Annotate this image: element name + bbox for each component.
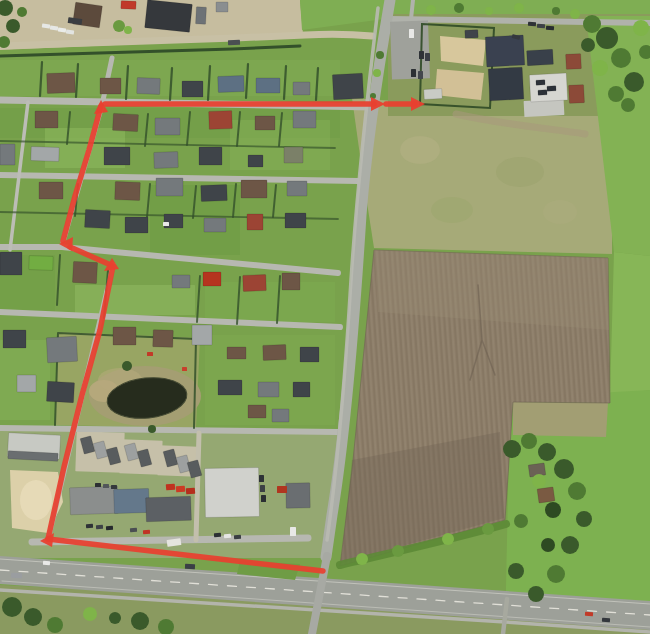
house (284, 147, 303, 163)
tree (592, 60, 608, 76)
vehicle (602, 618, 610, 623)
house (287, 181, 307, 196)
tree (545, 502, 561, 518)
house (247, 214, 263, 230)
solar-panel (547, 86, 556, 91)
red-truck (166, 484, 175, 491)
tree (514, 514, 528, 528)
tree (109, 612, 121, 624)
vehicle (528, 22, 536, 27)
tree (17, 7, 27, 17)
tree (576, 511, 592, 527)
tree (508, 563, 524, 579)
house (39, 182, 63, 199)
tree (485, 7, 493, 15)
vehicle (111, 485, 117, 489)
tree (2, 597, 22, 617)
house (300, 347, 319, 362)
vehicle (95, 483, 101, 487)
house (155, 118, 180, 135)
tree (482, 523, 494, 535)
vehicle (147, 352, 153, 356)
tree (521, 433, 537, 449)
school-red-annex (566, 54, 582, 70)
vehicle (43, 561, 50, 565)
tree (376, 51, 384, 59)
tree (83, 607, 97, 621)
house (17, 375, 36, 392)
school-road-branch (411, 0, 413, 19)
aerial-map-view[interactable] (0, 0, 650, 634)
tree (442, 533, 454, 545)
farm-building (145, 0, 193, 32)
school-sand-yard (435, 69, 484, 100)
vehicle (418, 71, 423, 79)
tree (514, 3, 524, 13)
vehicle (214, 533, 221, 537)
aerial-imagery (0, 0, 650, 634)
truck (228, 40, 240, 45)
vehicle (411, 69, 416, 77)
tree (596, 27, 618, 49)
tree (454, 3, 464, 13)
school-building (527, 49, 554, 65)
tree (356, 553, 368, 565)
tree (568, 482, 586, 500)
house (332, 73, 363, 100)
tree (24, 608, 42, 626)
school-shed (424, 89, 442, 100)
vehicle (234, 535, 241, 539)
tree (538, 443, 556, 461)
vehicle (546, 26, 554, 31)
white-van (290, 527, 296, 536)
lawn-patches-shape (400, 136, 440, 164)
red-truck (186, 488, 195, 495)
school-sand-yard (440, 36, 486, 66)
house (113, 327, 136, 345)
tree (532, 474, 546, 488)
house (85, 209, 111, 228)
vehicle (425, 53, 430, 61)
house (248, 405, 266, 418)
house (100, 78, 121, 94)
school-paved-yard (524, 99, 565, 117)
vehicle (409, 29, 414, 38)
solar-panel (536, 80, 545, 85)
tree (6, 19, 20, 33)
vehicle (96, 525, 103, 529)
farm-building (121, 1, 136, 10)
vehicle (86, 524, 93, 528)
vehicle (261, 495, 266, 502)
house (243, 275, 267, 292)
farmstead-shed (537, 487, 555, 503)
tree (503, 440, 521, 458)
house (113, 113, 139, 131)
school-red-annex (569, 85, 585, 104)
tree (373, 69, 381, 77)
house (258, 382, 279, 397)
house (272, 409, 289, 422)
house (115, 182, 141, 201)
house (218, 76, 245, 93)
red-container (277, 486, 287, 493)
house (201, 185, 228, 202)
vehicle (185, 564, 195, 570)
house (248, 155, 263, 167)
industrial-white-building (205, 468, 260, 518)
vehicle (585, 612, 593, 617)
tree (392, 545, 404, 557)
vehicle (259, 475, 264, 482)
house (0, 144, 15, 165)
house (209, 111, 233, 130)
industrial-building (286, 483, 310, 508)
tree (148, 425, 156, 433)
green-roof-house (29, 256, 53, 271)
house (104, 147, 130, 165)
tree (554, 459, 574, 479)
vehicle (103, 484, 109, 488)
tree (570, 9, 580, 19)
house (0, 252, 22, 275)
house (285, 213, 306, 228)
house (263, 345, 287, 361)
house (293, 82, 310, 95)
farm-building (196, 7, 207, 25)
lawn-patches-shape (543, 200, 577, 224)
scrub-notch (513, 402, 608, 437)
house (156, 178, 183, 196)
lawn-patches-shape (431, 197, 473, 223)
tree (426, 5, 436, 15)
vehicle (260, 485, 265, 492)
tree (608, 86, 624, 102)
school-road (390, 19, 650, 23)
house (31, 147, 59, 162)
vehicle (106, 526, 113, 530)
house (72, 261, 97, 283)
red-roof-house (203, 272, 221, 286)
house (125, 217, 148, 233)
house (282, 273, 300, 290)
sand-pit-inner (20, 480, 52, 520)
vehicle (224, 534, 231, 538)
house (154, 152, 179, 169)
farm-building (216, 2, 228, 12)
house (172, 275, 190, 288)
tree (113, 20, 125, 32)
street-5 (0, 428, 338, 432)
house (241, 180, 267, 198)
house (46, 336, 77, 363)
house (153, 330, 174, 348)
school-building (488, 67, 524, 101)
tree (528, 586, 544, 602)
vehicle (143, 530, 150, 534)
industrial-showroom (114, 488, 150, 513)
meadow-mid-right (610, 252, 650, 396)
tree (624, 72, 644, 92)
tree (621, 98, 635, 112)
lawn-patches-shape (205, 282, 335, 322)
house (293, 382, 310, 397)
house (255, 116, 275, 130)
lawn-patches-shape (75, 285, 195, 315)
tree (131, 612, 149, 630)
vehicle (130, 528, 137, 532)
vehicle (419, 51, 424, 59)
tree (552, 7, 560, 15)
house (256, 78, 280, 93)
house (218, 380, 242, 395)
tree (122, 361, 132, 371)
tree (124, 26, 132, 34)
house (137, 78, 161, 95)
vehicle (182, 367, 187, 371)
tree (541, 538, 555, 552)
house (204, 218, 226, 232)
vehicle (11, 573, 22, 579)
industrial-drive (196, 433, 199, 540)
house (293, 111, 316, 128)
vehicle (163, 222, 169, 226)
house (182, 81, 203, 97)
house (192, 325, 212, 345)
house (227, 347, 246, 359)
tree (47, 617, 63, 633)
tree (611, 48, 631, 68)
house (35, 111, 58, 128)
red-truck (176, 486, 185, 493)
tree (547, 565, 565, 583)
tree (581, 38, 595, 52)
industrial-building (70, 486, 119, 515)
solar-panel (538, 90, 547, 95)
vehicle (537, 24, 545, 29)
house (3, 330, 26, 348)
house (199, 147, 222, 165)
tree (633, 20, 649, 36)
industrial-building (146, 496, 192, 522)
house (47, 73, 76, 94)
school-shed (465, 30, 478, 39)
house (46, 381, 74, 402)
tree (561, 536, 579, 554)
lawn-patches-shape (496, 157, 544, 187)
tree (583, 15, 601, 33)
